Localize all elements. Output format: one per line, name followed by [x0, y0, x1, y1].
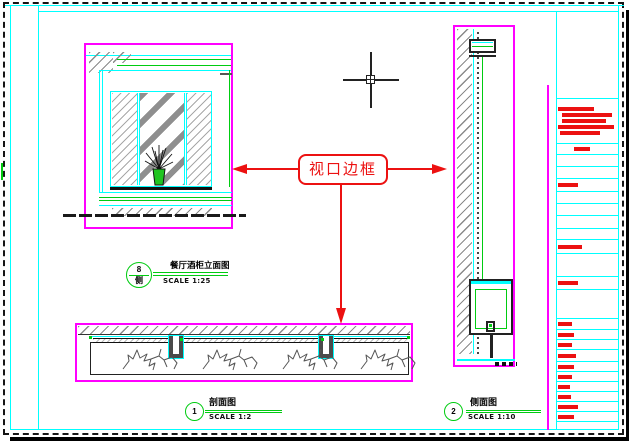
- floor-glyphs: [495, 362, 517, 366]
- paper-shadow-bottom: [10, 437, 629, 441]
- red-text-line: [558, 365, 574, 369]
- grip-dot-1: [89, 336, 92, 339]
- titleblock-row: [556, 372, 619, 382]
- red-text-line: [558, 375, 572, 379]
- titleblock-row: [556, 382, 619, 392]
- red-text-line: [558, 405, 578, 409]
- titleblock-row: [556, 330, 619, 340]
- titleblock-row: [556, 99, 619, 144]
- bubble-sheet: 侧: [135, 276, 143, 285]
- titleblock-row: [556, 319, 619, 330]
- callout-label: 视口边框: [309, 162, 377, 177]
- top-rail-cyan: [472, 42, 493, 43]
- base-drop-line: [490, 335, 493, 358]
- red-text-line: [558, 415, 574, 419]
- top-rail-section: [469, 39, 496, 53]
- red-text-line: [562, 119, 606, 123]
- top-rail-green: [472, 46, 493, 47]
- titleblock-row: [556, 290, 619, 319]
- panel-bar-left: [93, 338, 169, 343]
- glass-pane-left: [112, 93, 137, 185]
- titleblock-row: [556, 277, 619, 290]
- viewport-border-callout[interactable]: 视口边框: [298, 154, 388, 185]
- sill-line-1: [99, 192, 232, 193]
- skirting-line-2: [99, 200, 232, 201]
- sill-line-2: [99, 205, 232, 206]
- red-text-line: [558, 107, 594, 111]
- titleblock-row: [556, 144, 619, 155]
- section1-scale: SCALE 1:2: [209, 414, 252, 421]
- titleblock-row: [556, 155, 619, 167]
- cabinet-section: [469, 279, 513, 335]
- titleblock-row: [556, 412, 619, 422]
- titleblock-rows: [556, 11, 619, 430]
- titleblock-row: [556, 179, 619, 192]
- detail-bubble-elevation[interactable]: 8 侧: [126, 262, 152, 288]
- panel-outline: [90, 342, 409, 375]
- red-text-line: [558, 395, 571, 399]
- bubble-number: 8: [129, 266, 148, 276]
- grip-dot-2: [407, 336, 410, 339]
- grip-dot-3: [180, 338, 183, 341]
- titleblock-row: [556, 422, 619, 430]
- arrow-left-icon: [232, 164, 247, 174]
- callout-line-left: [246, 168, 298, 170]
- frame-inner-left: [38, 5, 39, 430]
- window-sill: [110, 187, 212, 190]
- ceiling-line-2: [100, 70, 231, 71]
- skirting-line-1: [99, 197, 232, 198]
- titleblock-row: [556, 240, 619, 254]
- floor-line-cyan: [457, 359, 515, 361]
- section2-scale: SCALE 1:10: [468, 414, 516, 421]
- crosshair-icon: [343, 52, 399, 108]
- titleblock-row: [556, 362, 619, 372]
- titleblock-row: [556, 229, 619, 240]
- section2-title: 侧面图: [470, 398, 497, 408]
- ceiling-trim-line-1: [117, 59, 231, 60]
- grip-dot-4: [321, 338, 324, 341]
- plant-icon: [143, 145, 175, 187]
- cad-layout-sheet: 8 侧 餐厅酒柜立面图 SCALE 1:25: [0, 0, 629, 443]
- red-text-line: [558, 281, 578, 285]
- bubble-number: 2: [451, 408, 455, 416]
- wall-line-left-2: [102, 70, 103, 192]
- panel-bar-center: [183, 338, 319, 343]
- red-text-line: [558, 354, 576, 358]
- wall-line-left-1: [99, 70, 100, 192]
- viewport-titleblock-edge[interactable]: [547, 85, 549, 430]
- titleblock-row: [556, 192, 619, 204]
- arrow-down-icon: [336, 308, 346, 324]
- wall-hatch-top-b: [113, 52, 131, 63]
- titleblock-row: [556, 11, 619, 99]
- cabinet-knob: [486, 321, 495, 332]
- wall-hatch-band: [78, 326, 410, 335]
- callout-line-right: [388, 168, 433, 170]
- detail-bubble-section2[interactable]: 2: [444, 402, 463, 421]
- titleblock-row: [556, 216, 619, 229]
- titleblock-row: [556, 340, 619, 350]
- arrow-right-icon: [432, 164, 447, 174]
- elevation-scale: SCALE 1:25: [163, 278, 211, 285]
- elevation-title: 餐厅酒柜立面图: [170, 261, 230, 270]
- red-text-line: [558, 245, 582, 249]
- red-text-line: [558, 343, 572, 347]
- glass-pane-right: [187, 93, 211, 185]
- bubble-number: 1: [192, 408, 196, 416]
- titleblock-row: [556, 402, 619, 412]
- ground-line: [63, 214, 246, 217]
- ceiling-trim-line-2: [117, 65, 231, 66]
- elevation-title-rule: [153, 272, 228, 276]
- top-rail-underline: [469, 55, 496, 57]
- red-text-line: [558, 322, 572, 326]
- panel-face-line: [482, 55, 483, 279]
- panel-bar-right: [333, 338, 409, 343]
- red-text-line: [558, 385, 570, 389]
- left-margin-tick: [1, 163, 3, 180]
- titleblock-row: [556, 392, 619, 402]
- wall-line-right: [229, 70, 230, 187]
- callout-line-down: [340, 185, 342, 308]
- red-text-line: [562, 113, 612, 117]
- titleblock-row: [556, 254, 619, 277]
- pickbox: [366, 75, 375, 84]
- gray-segment: [220, 73, 232, 75]
- red-text-line: [574, 147, 590, 151]
- cabinet-top-cyan: [471, 281, 511, 284]
- titleblock-row: [556, 167, 619, 179]
- wall-face-line-h: [89, 336, 409, 337]
- section1-title: 剖面图: [209, 398, 236, 408]
- detail-bubble-section1[interactable]: 1: [185, 402, 204, 421]
- red-text-line: [560, 131, 600, 135]
- viewport-border-elevation[interactable]: [84, 43, 233, 229]
- red-text-line: [558, 333, 574, 337]
- titleblock-row: [556, 204, 619, 216]
- titleblock-row: [556, 350, 619, 362]
- viewport-border-section-vertical[interactable]: [453, 25, 515, 367]
- red-text-line: [558, 183, 578, 187]
- viewport-border-section-horizontal[interactable]: [75, 323, 413, 382]
- red-text-line: [558, 125, 614, 129]
- frame-inner-top: [38, 11, 619, 12]
